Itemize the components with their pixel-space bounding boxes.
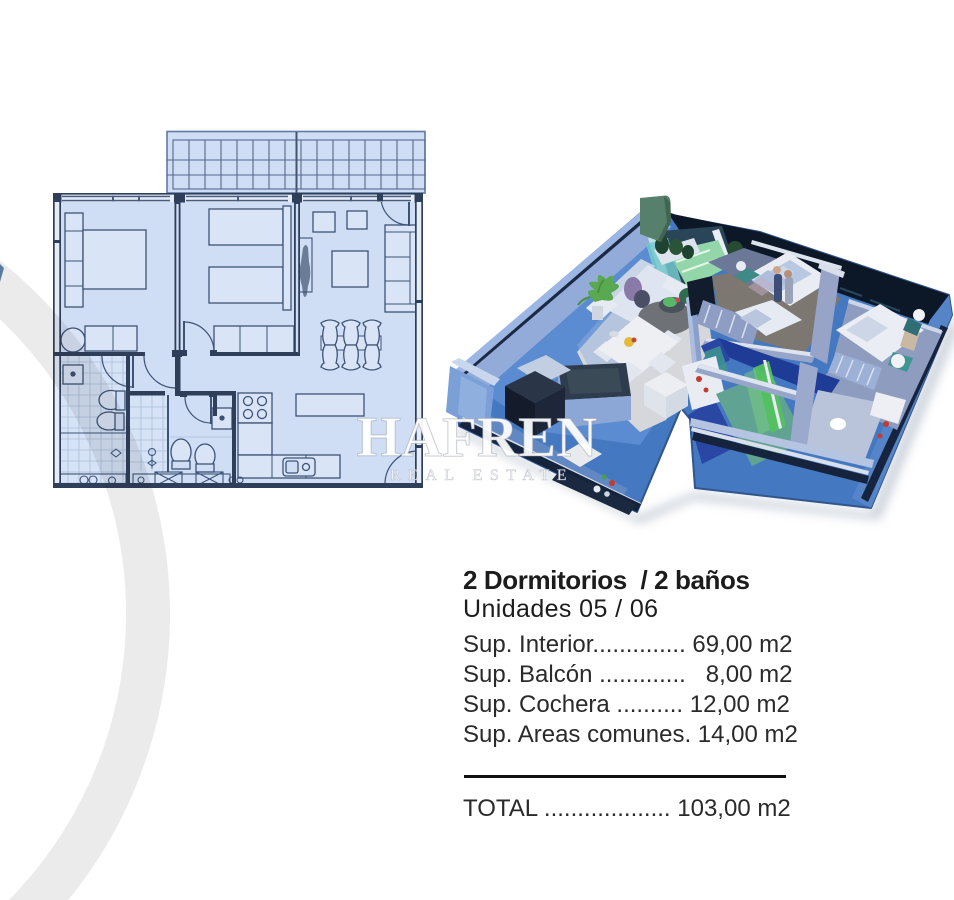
svg-text:HAFREN: HAFREN [357,406,598,469]
svg-text:REAL ESTATE: REAL ESTATE [390,467,574,484]
